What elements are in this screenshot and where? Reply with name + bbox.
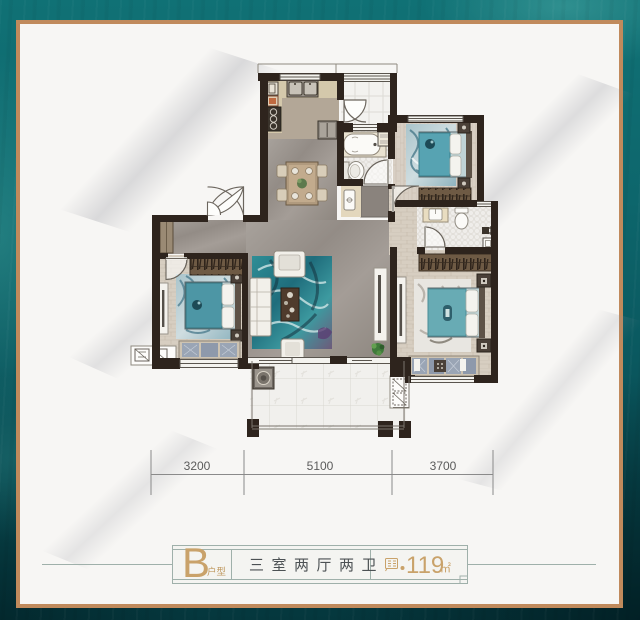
svg-text:119: 119	[406, 552, 444, 579]
svg-text:㎡: ㎡	[440, 562, 451, 575]
svg-text:5100: 5100	[307, 459, 334, 473]
svg-text:3700: 3700	[430, 459, 457, 473]
svg-text:户型: 户型	[207, 566, 227, 578]
svg-text:B: B	[182, 539, 210, 586]
svg-text:三室两厅两卫: 三室两厅两卫	[249, 557, 384, 574]
svg-text:3200: 3200	[184, 459, 211, 473]
